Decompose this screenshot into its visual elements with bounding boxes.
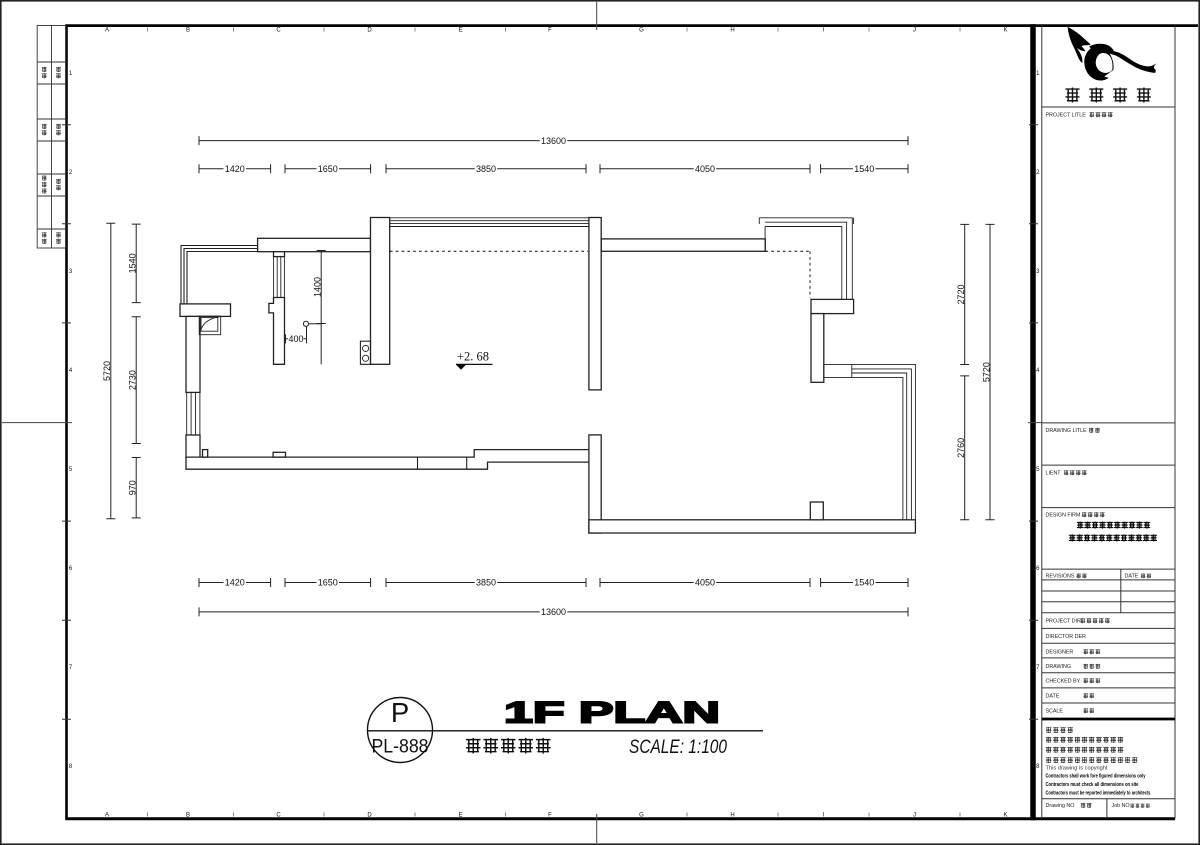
- svg-text:DATE: DATE: [1046, 694, 1060, 700]
- svg-text:D: D: [367, 813, 372, 819]
- svg-text:1420: 1420: [225, 164, 245, 174]
- svg-text:H: H: [730, 813, 734, 819]
- svg-text:REVISIONS: REVISIONS: [1046, 574, 1075, 580]
- svg-text:5720: 5720: [102, 361, 112, 381]
- svg-text:400: 400: [288, 334, 303, 344]
- svg-text:K: K: [1003, 813, 1007, 819]
- svg-text:970: 970: [128, 480, 138, 495]
- svg-text:SCALE: SCALE: [1046, 709, 1064, 715]
- svg-text:5720: 5720: [981, 362, 991, 382]
- svg-text:J: J: [913, 813, 916, 819]
- svg-text:J: J: [913, 28, 916, 34]
- svg-text:Contractors shall work fore fi: Contractors shall work fore figured dime…: [1046, 774, 1147, 780]
- svg-text:3850: 3850: [476, 578, 496, 588]
- svg-text:DESIGN FIRM: DESIGN FIRM: [1046, 513, 1081, 519]
- svg-text:1540: 1540: [854, 578, 874, 588]
- svg-text:G: G: [639, 28, 644, 34]
- svg-text:P: P: [391, 697, 409, 728]
- svg-text:1540: 1540: [128, 253, 138, 273]
- svg-text:B: B: [186, 813, 190, 819]
- svg-text:Drawing NO: Drawing NO: [1046, 803, 1075, 809]
- svg-text:DRAWING: DRAWING: [1046, 664, 1072, 670]
- svg-text:C: C: [276, 28, 281, 34]
- svg-text:Contractors must check all dim: Contractors must check all dimensions on…: [1046, 782, 1140, 788]
- svg-text:13600: 13600: [541, 136, 566, 146]
- svg-text:K: K: [1003, 28, 1007, 34]
- svg-text:1540: 1540: [854, 164, 874, 174]
- svg-text:1420: 1420: [225, 578, 245, 588]
- svg-text:LIENT: LIENT: [1046, 471, 1062, 477]
- svg-text:F: F: [548, 813, 552, 819]
- svg-text:G: G: [639, 813, 644, 819]
- svg-text:PROJECT DIR: PROJECT DIR: [1046, 619, 1081, 625]
- svg-text:B: B: [186, 28, 190, 34]
- svg-text:This drawing is copyright: This drawing is copyright: [1046, 766, 1108, 772]
- svg-text:DATE: DATE: [1125, 574, 1139, 580]
- svg-text:13600: 13600: [541, 607, 566, 617]
- svg-text:E: E: [458, 28, 462, 34]
- svg-text:Job NO: Job NO: [1112, 803, 1130, 809]
- svg-text:1650: 1650: [318, 578, 338, 588]
- svg-text:Contractors must be reported i: Contractors must be reported immediately…: [1046, 791, 1151, 797]
- svg-text:PROJECT LITLE: PROJECT LITLE: [1046, 113, 1087, 119]
- svg-text:A: A: [105, 28, 109, 34]
- svg-text:E: E: [458, 813, 462, 819]
- svg-text:DESIGNER: DESIGNER: [1046, 650, 1074, 656]
- svg-text:1650: 1650: [318, 164, 338, 174]
- svg-text:F: F: [548, 28, 552, 34]
- svg-text:1400: 1400: [312, 277, 322, 297]
- svg-text:PL-888: PL-888: [372, 736, 429, 758]
- svg-text:A: A: [105, 813, 109, 819]
- svg-text:CHECKED BY: CHECKED BY: [1046, 679, 1081, 685]
- svg-text:4050: 4050: [695, 578, 715, 588]
- svg-text:2720: 2720: [956, 284, 966, 304]
- svg-text:2730: 2730: [128, 370, 138, 390]
- svg-text:4050: 4050: [695, 164, 715, 174]
- svg-text:2760: 2760: [956, 438, 966, 458]
- svg-text:DIRECTOR DER: DIRECTOR DER: [1046, 634, 1086, 640]
- svg-text:3850: 3850: [476, 164, 496, 174]
- svg-text:1F PLAN: 1F PLAN: [504, 697, 720, 730]
- svg-text:DRAWING LITLE: DRAWING LITLE: [1046, 428, 1088, 434]
- svg-text:C: C: [276, 813, 281, 819]
- svg-text:D: D: [367, 28, 372, 34]
- svg-text:H: H: [730, 28, 734, 34]
- svg-text:+2. 68: +2. 68: [457, 350, 489, 364]
- svg-text:SCALE: 1:100: SCALE: 1:100: [629, 737, 727, 758]
